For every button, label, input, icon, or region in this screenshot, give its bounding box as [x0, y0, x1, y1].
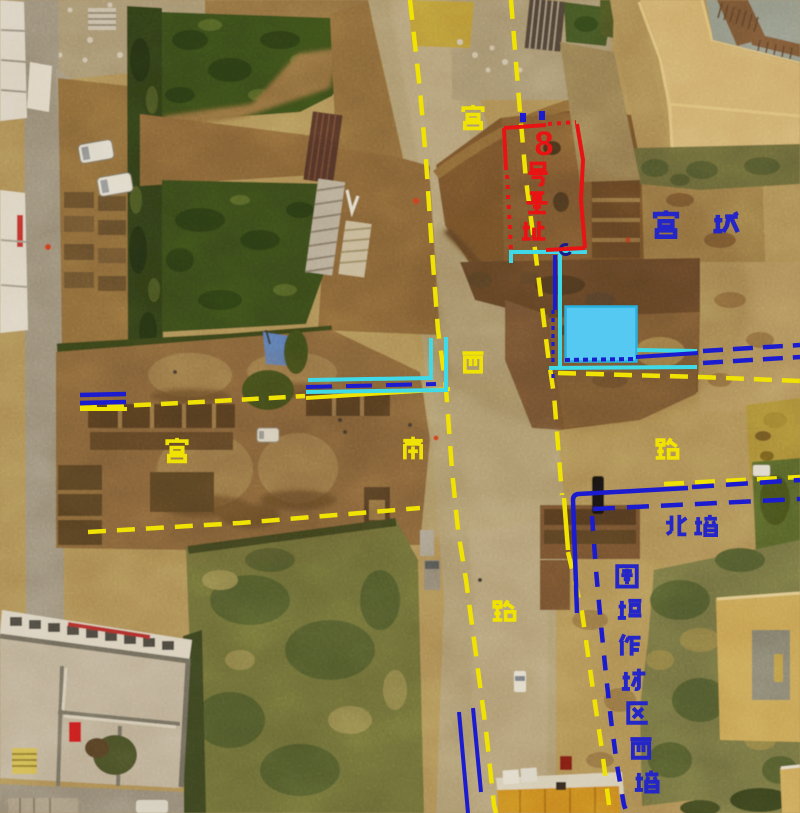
svg-text:8: 8: [535, 125, 554, 163]
